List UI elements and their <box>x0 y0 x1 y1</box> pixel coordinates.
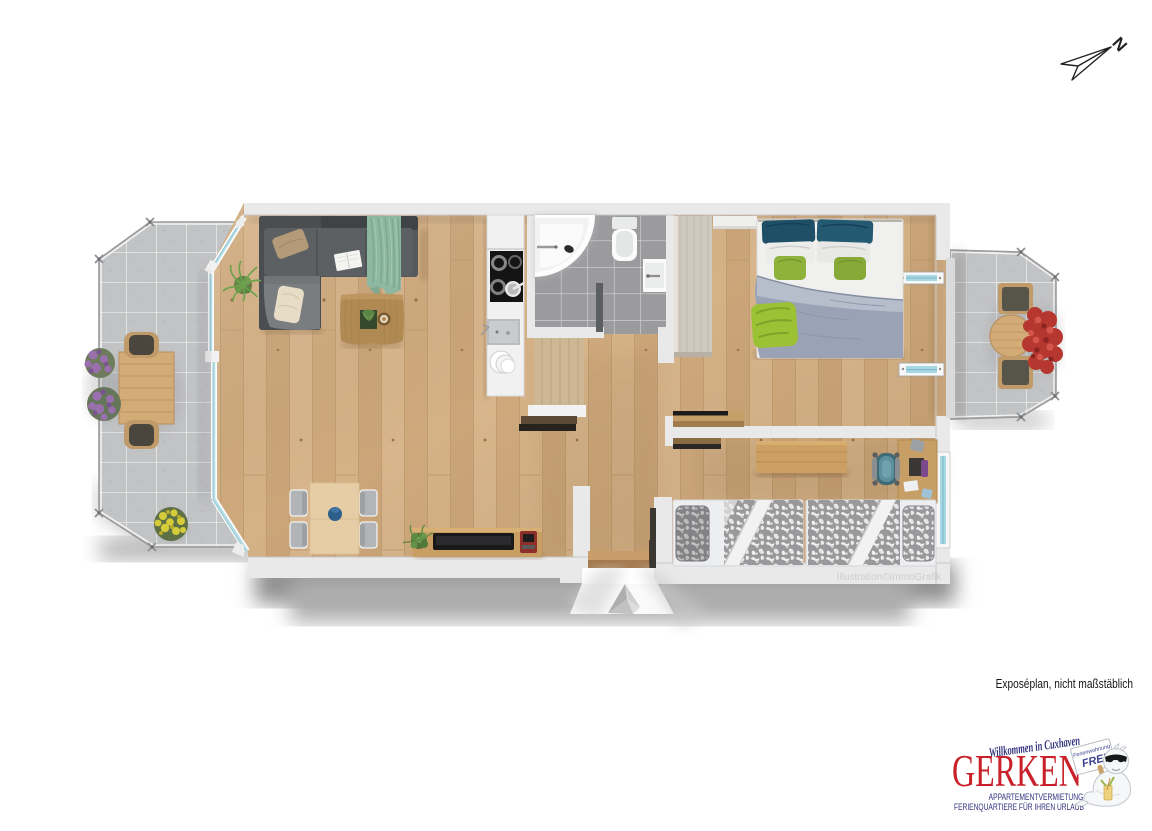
svg-text:APPARTEMENTVERMIETUNG: APPARTEMENTVERMIETUNG <box>989 792 1084 802</box>
svg-text:FERIENQUARTIERE FÜR IHREN URLA: FERIENQUARTIERE FÜR IHREN URLAUB <box>954 802 1084 812</box>
svg-text:N: N <box>1108 33 1130 55</box>
svg-text:Illustration©ImmoGrafik: Illustration©ImmoGrafik <box>837 572 943 583</box>
svg-text:GERKEN: GERKEN <box>952 747 1082 797</box>
svg-text:Exposéplan, nicht maßstäblich: Exposéplan, nicht maßstäblich <box>996 677 1133 691</box>
